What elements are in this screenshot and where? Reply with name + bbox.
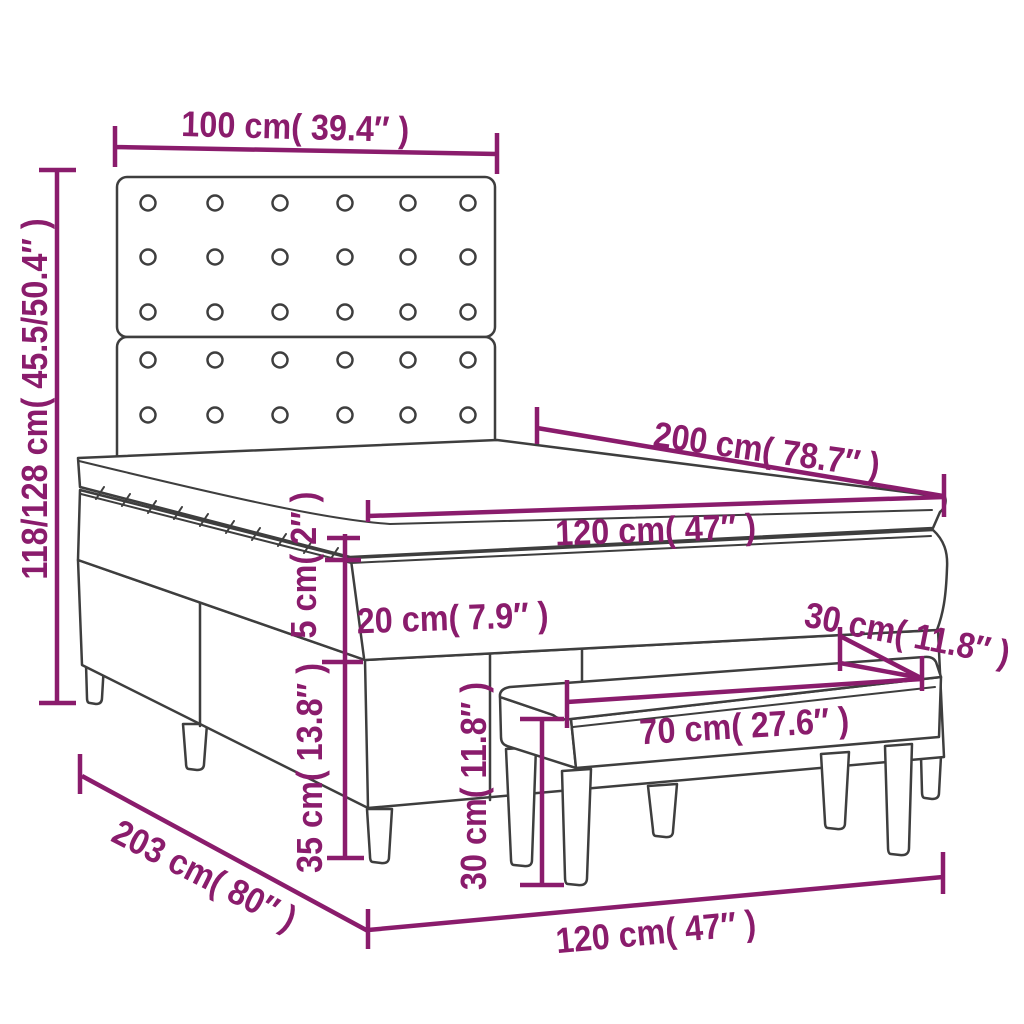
headboard-button (208, 353, 223, 368)
headboard-button (208, 408, 223, 423)
headboard-button (141, 196, 156, 211)
dim-headboard-width: 100 cm( 39.4″ ) (115, 104, 497, 174)
headboard-button (338, 196, 353, 211)
headboard-button (208, 305, 223, 320)
headboard-button (273, 353, 288, 368)
dim-label-mattress-thickness: 20 cm( 7.9″ ) (356, 595, 549, 642)
headboard-button (401, 250, 416, 265)
dim-label-topper-thickness: 5 cm( 2″ ) (284, 492, 324, 639)
headboard-button (401, 408, 416, 423)
headboard-button (461, 305, 476, 320)
bed-leg (183, 724, 207, 770)
headboard-button (401, 305, 416, 320)
bed-leg (367, 809, 392, 863)
bench-leg (562, 769, 591, 885)
headboard-button (338, 408, 353, 423)
bed-leg (921, 756, 941, 799)
dim-label-bench-height: 30 cm( 11.8″ ) (454, 682, 494, 890)
headboard-button (273, 196, 288, 211)
headboard-button (141, 408, 156, 423)
headboard-button (461, 196, 476, 211)
headboard-button (208, 250, 223, 265)
headboard-button (461, 353, 476, 368)
furniture (78, 177, 947, 885)
headboard-button (273, 250, 288, 265)
headboard-button (338, 305, 353, 320)
dim-label-overall-height: 118/128 cm( 45.5/50.4″ ) (15, 218, 55, 579)
dim-label-bed-width-top: 120 cm( 47″ ) (554, 507, 756, 554)
diagram-canvas: 100 cm( 39.4″ ) 118/128 cm( 45.5/50.4″ )… (0, 0, 1024, 1024)
headboard-button (401, 353, 416, 368)
bench-leg (506, 747, 536, 866)
headboard-button (141, 353, 156, 368)
dim-label-bed-length-total: 203 cm( 80″ ) (106, 812, 303, 939)
headboard-button (208, 196, 223, 211)
headboard-button (338, 250, 353, 265)
bench-leg (885, 744, 912, 855)
headboard-button (461, 408, 476, 423)
headboard-button (141, 250, 156, 265)
headboard-button (338, 353, 353, 368)
bench-leg (648, 784, 677, 837)
headboard-button (273, 408, 288, 423)
headboard-button (273, 305, 288, 320)
dim-overall-height: 118/128 cm( 45.5/50.4″ ) (15, 170, 76, 703)
headboard (117, 177, 495, 477)
bench-leg (821, 752, 849, 829)
headboard-upper-panel (117, 177, 495, 337)
headboard-button (401, 196, 416, 211)
dimension-diagram: 100 cm( 39.4″ ) 118/128 cm( 45.5/50.4″ )… (0, 0, 1024, 1024)
headboard-button (141, 305, 156, 320)
dim-label-base-height: 35 cm( 13.8″ ) (290, 663, 330, 873)
dim-label-headboard-width: 100 cm( 39.4″ ) (181, 104, 410, 150)
headboard-button (461, 250, 476, 265)
